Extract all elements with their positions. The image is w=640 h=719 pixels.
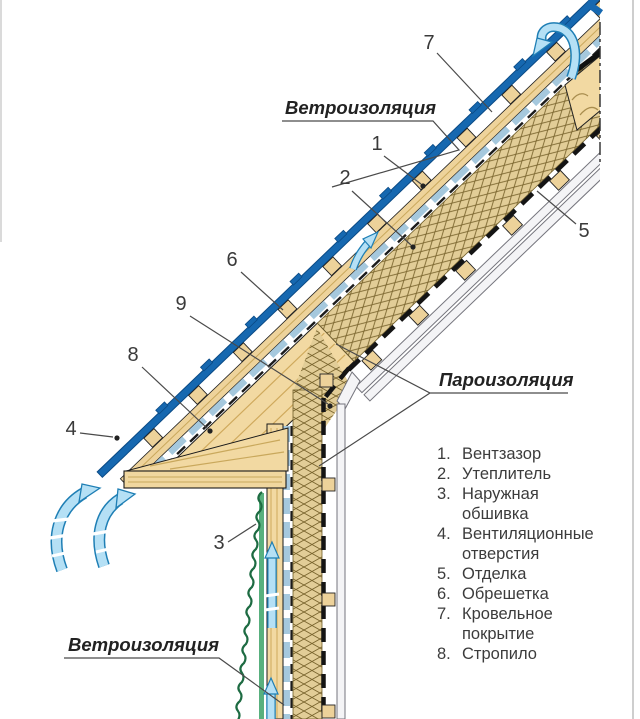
legend-item-number: 6. — [437, 584, 462, 604]
dot-9 — [327, 403, 332, 408]
callout-6: 6 — [226, 249, 237, 271]
label-vapor-barrier: Пароизоляция — [439, 369, 574, 390]
label-wind-barrier-top: Ветроизоляция — [285, 97, 436, 118]
roof-wind-barrier — [130, 16, 626, 492]
legend-item-number: 2. — [437, 464, 462, 484]
callout-7: 7 — [423, 32, 434, 54]
legend-item-5: 5. Отделка — [437, 564, 627, 584]
callout-1: 1 — [371, 133, 382, 155]
leader-7 — [437, 53, 492, 112]
wall-top-beam — [124, 471, 286, 488]
legend-item-number: 5. — [437, 564, 462, 584]
callout-8: 8 — [127, 344, 138, 366]
dot-8 — [207, 428, 212, 433]
legend-item-8: 8. Стропило — [437, 644, 627, 664]
label-wind-barrier-bottom: Ветроизоляция — [68, 634, 219, 655]
legend-item-6: 6. Обрешетка — [437, 584, 627, 604]
legend-item-2: 2. Утеплитель — [437, 464, 627, 484]
diagram-page: 7 1 2 6 9 8 4 3 5 Ветроизоляция Пароизол… — [0, 0, 640, 719]
callout-3: 3 — [213, 532, 224, 554]
callout-9: 9 — [175, 293, 186, 315]
legend-item-text: Кровельное покрытие — [462, 604, 586, 644]
legend-item-number: 8. — [437, 644, 462, 664]
legend-item-4: 4. Вентиляционные отверстия — [437, 524, 627, 564]
legend-item-number: 3. — [437, 484, 462, 524]
leader-4 — [80, 433, 113, 437]
callout-5: 5 — [578, 220, 589, 242]
callout-4: 4 — [65, 418, 76, 440]
legend-item-text: Вентиляционные отверстия — [462, 524, 586, 564]
dot-1 — [420, 183, 425, 188]
legend-item-text: Утеплитель — [462, 464, 586, 484]
legend-item-text: Отделка — [462, 564, 586, 584]
legend-item-number: 7. — [437, 604, 462, 644]
legend-item-7: 7. Кровельное покрытие — [437, 604, 627, 644]
dot-2 — [410, 244, 415, 249]
legend-item-text: Вентзазор — [462, 444, 586, 464]
legend-item-text: Наружная обшивка — [462, 484, 586, 524]
legend-item-1: 1. Вентзазор — [437, 444, 627, 464]
wall-insulation — [293, 390, 322, 719]
legend: 1. Вентзазор 2. Утеплитель 3. Наружная о… — [437, 444, 627, 664]
legend-item-number: 4. — [437, 524, 462, 564]
leader-6 — [241, 272, 283, 310]
roof-wind-barrier-edge — [138, 20, 630, 491]
legend-item-text: Обрешетка — [462, 584, 586, 604]
legend-item-number: 1. — [437, 444, 462, 464]
legend-item-3: 3. Наружная обшивка — [437, 484, 627, 524]
dot-4 — [114, 435, 119, 440]
callout-2: 2 — [339, 167, 350, 189]
legend-item-text: Стропило — [462, 644, 586, 664]
